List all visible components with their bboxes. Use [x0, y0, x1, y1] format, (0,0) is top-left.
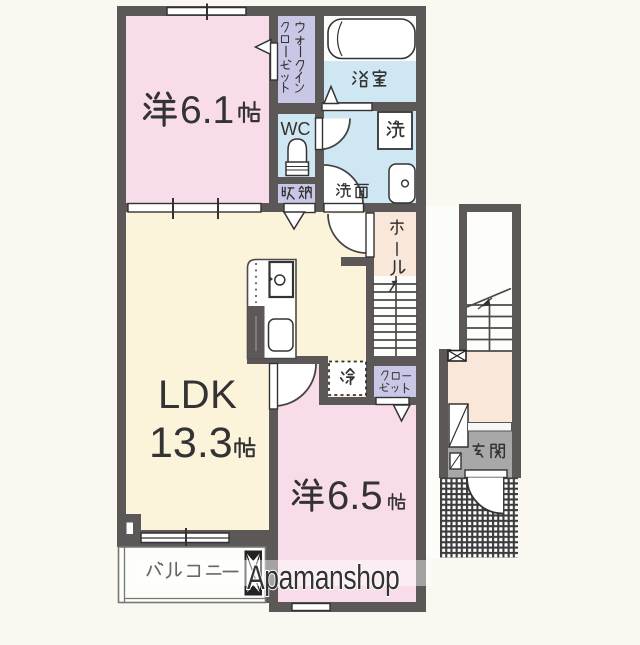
- svg-text:6.1: 6.1: [180, 89, 234, 132]
- svg-text:6.5: 6.5: [327, 474, 383, 518]
- svg-text:LDK: LDK: [158, 373, 237, 417]
- svg-text:Apamanshop: Apamanshop: [247, 559, 399, 597]
- svg-text:13.3: 13.3: [149, 419, 233, 467]
- svg-text:WC: WC: [281, 119, 311, 139]
